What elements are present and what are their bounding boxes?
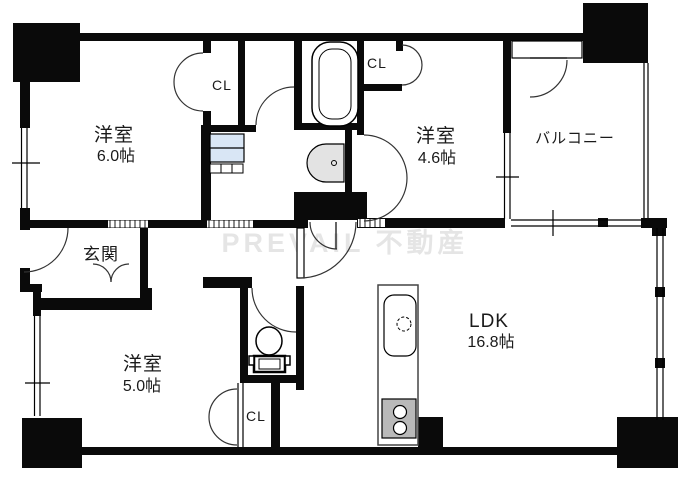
- wall-segment: [211, 125, 256, 132]
- wall-segment: [203, 111, 211, 125]
- toilet-tank-inner: [259, 359, 280, 369]
- label-bedroom-46-size: 4.6帖: [418, 149, 456, 167]
- label-bedroom-5-size: 5.0帖: [123, 377, 161, 395]
- wall-segment: [345, 130, 352, 192]
- wall-segment: [140, 228, 148, 288]
- label-balcony: バルコニー: [535, 130, 615, 147]
- wall-segment: [20, 268, 30, 284]
- wall-segment: [396, 41, 403, 51]
- toilet-handle: [285, 356, 290, 365]
- washer-detail: [221, 164, 232, 173]
- wall-segment: [238, 41, 245, 125]
- stove-burner: [394, 406, 407, 419]
- label-closet-top-left: CL: [212, 77, 232, 93]
- floorplan-drawing: PREVAIL 不動産: [0, 0, 685, 481]
- wall-segment: [294, 218, 303, 228]
- label-closet-top-right: CL: [367, 55, 387, 71]
- wall-segment: [20, 41, 30, 128]
- wall-segment: [240, 375, 304, 383]
- label-bedroom-5-name: 洋室: [123, 353, 163, 375]
- hatch-bg: [108, 221, 148, 228]
- label-ldk-size: 16.8帖: [467, 333, 514, 351]
- floorplan-page: PREVAIL 不動産: [0, 0, 685, 481]
- label-bedroom-6-size: 6.0帖: [97, 147, 135, 165]
- wall-segment: [294, 37, 302, 125]
- washbasin: [307, 144, 344, 182]
- wall-segment: [641, 218, 667, 228]
- wall-segment: [357, 84, 402, 91]
- toilet-handle: [249, 356, 254, 365]
- wall-segment: [240, 286, 248, 378]
- wall-segment: [296, 286, 304, 390]
- watermark-text: PREVAIL 不動産: [221, 227, 468, 258]
- washer-detail: [232, 164, 243, 173]
- label-entrance: 玄関: [83, 245, 119, 264]
- pillar-bottom-right: [617, 417, 678, 468]
- wall-segment: [271, 383, 280, 447]
- wall-segment: [652, 228, 666, 236]
- bathtub-inner: [319, 49, 351, 119]
- label-ldk-name: LDK: [469, 311, 509, 332]
- label-closet-bottom: CL: [246, 408, 266, 424]
- wall-segment: [503, 33, 511, 133]
- label-bedroom-6-name: 洋室: [94, 124, 134, 146]
- stove-burner: [394, 422, 407, 435]
- wall-segment: [294, 192, 367, 220]
- washer-detail: [210, 164, 221, 173]
- wall-segment: [418, 417, 443, 447]
- wall-segment: [20, 284, 42, 292]
- balcony-door-frame: [512, 41, 582, 58]
- wall-segment: [28, 220, 308, 228]
- wall-segment: [22, 447, 678, 455]
- pillar-bottom-left: [22, 418, 82, 468]
- wall-segment: [203, 41, 211, 53]
- label-bedroom-46-name: 洋室: [416, 125, 456, 147]
- toilet-bowl: [256, 327, 282, 355]
- pillar-top-right: [583, 3, 648, 63]
- door-panel: [297, 228, 304, 278]
- wall-segment: [33, 298, 148, 310]
